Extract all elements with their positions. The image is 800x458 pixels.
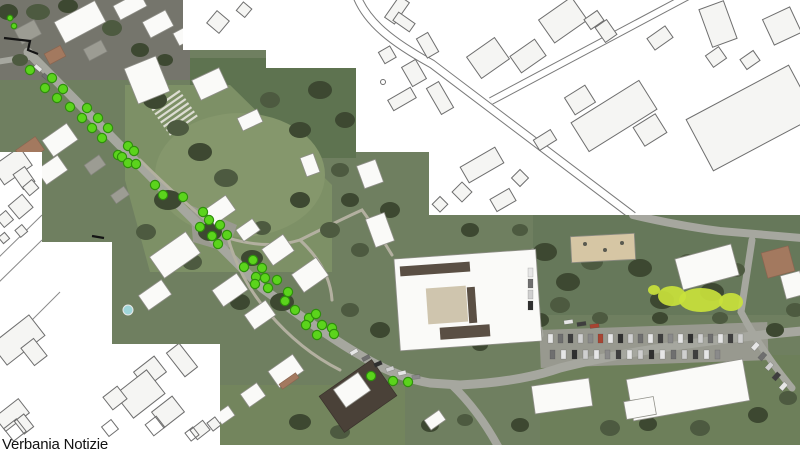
tree-marker xyxy=(403,377,412,386)
tree-marker xyxy=(248,255,257,264)
tree-marker xyxy=(25,65,34,74)
tree-marker xyxy=(40,83,49,92)
tree-marker xyxy=(329,329,338,338)
tree-marker xyxy=(198,207,207,216)
tree-marker xyxy=(239,262,248,271)
tree-marker xyxy=(65,102,74,111)
tree-marker xyxy=(260,273,269,282)
tree-marker xyxy=(311,309,320,318)
tree-marker xyxy=(150,180,159,189)
pool xyxy=(123,305,133,315)
tree-marker xyxy=(7,15,13,21)
playground xyxy=(570,233,635,262)
tree-marker xyxy=(131,159,140,168)
school-building xyxy=(394,249,542,351)
tree-marker xyxy=(280,296,289,305)
tree-marker xyxy=(263,283,272,292)
tree-marker xyxy=(11,23,17,29)
tree-marker xyxy=(312,330,321,339)
tree-marker xyxy=(272,275,281,284)
tree-marker xyxy=(93,113,102,122)
tree-marker xyxy=(158,190,167,199)
tree-marker xyxy=(283,287,292,296)
tree-marker xyxy=(97,133,106,142)
map-image: Verbania Notizie xyxy=(0,0,800,458)
tree-marker xyxy=(215,220,224,229)
tree-marker xyxy=(47,73,56,82)
tree-marker xyxy=(317,320,326,329)
watermark-caption: Verbania Notizie xyxy=(2,436,108,454)
tree-marker xyxy=(129,146,138,155)
map-canvas xyxy=(0,0,800,458)
tree-marker xyxy=(82,103,91,112)
tree-marker xyxy=(257,263,266,272)
tree-marker xyxy=(250,279,259,288)
tree-marker xyxy=(52,93,61,102)
tree-marker xyxy=(290,305,299,314)
tree-marker xyxy=(58,84,67,93)
tree-marker xyxy=(207,231,216,240)
tree-marker xyxy=(87,123,96,132)
tree-marker xyxy=(301,320,310,329)
tree-marker xyxy=(204,215,213,224)
tree-marker xyxy=(388,376,397,385)
tree-marker xyxy=(222,230,231,239)
tree-marker xyxy=(178,192,187,201)
tree-marker xyxy=(366,371,375,380)
tree-marker xyxy=(195,222,204,231)
tree-marker xyxy=(77,113,86,122)
tree-marker xyxy=(103,123,112,132)
tree-marker xyxy=(213,239,222,248)
